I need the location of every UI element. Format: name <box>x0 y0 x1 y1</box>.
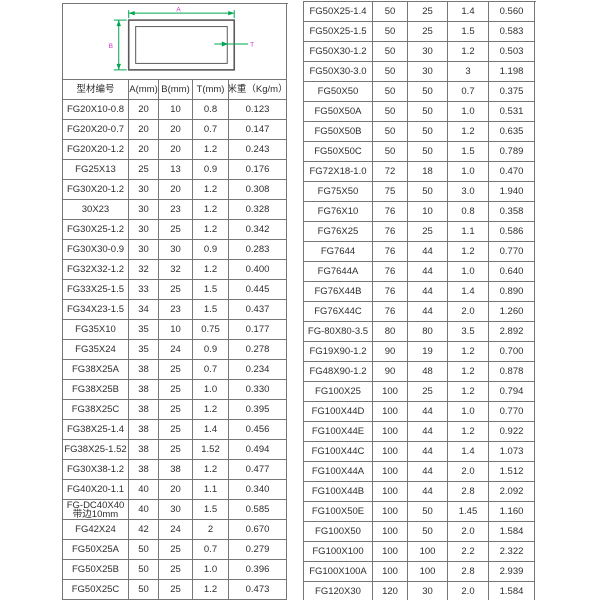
cell-t: 1.1 <box>448 222 489 242</box>
cell-weight: 0.395 <box>229 400 287 420</box>
cell-t: 3.5 <box>448 322 489 342</box>
cell-a: 25 <box>129 160 159 180</box>
table-row: FG38X25C38251.20.395 <box>63 400 288 420</box>
cell-weight: 0.330 <box>229 380 287 400</box>
cell-a: 40 <box>129 480 159 500</box>
cell-t: 1.52 <box>193 440 229 460</box>
cell-model: FG25X13 <box>63 160 129 180</box>
cell-a: 32 <box>129 260 159 280</box>
cell-t: 1.5 <box>193 300 229 320</box>
cell-b: 44 <box>408 422 448 442</box>
cell-weight: 0.878 <box>489 362 535 382</box>
cell-weight: 1.940 <box>489 182 535 202</box>
cell-model: FG-DC40X40 带边10mm <box>63 500 129 520</box>
cell-a: 50 <box>373 82 408 102</box>
cell-t: 0.75 <box>193 320 229 340</box>
table-row: FG100X44B100442.82.092 <box>304 482 536 502</box>
table-row: FG34X23-1.534231.50.437 <box>63 300 288 320</box>
cell-model: FG30X20-1.2 <box>63 180 129 200</box>
cell-b: 30 <box>408 62 448 82</box>
cell-t: 1.2 <box>448 242 489 262</box>
cell-model: FG20X20-1.2 <box>63 140 129 160</box>
cell-t: 2.8 <box>448 562 489 582</box>
dim-label-b: B <box>109 42 113 49</box>
cell-model: FG100X100A <box>304 562 373 582</box>
cell-a: 50 <box>373 142 408 162</box>
cell-a: 38 <box>129 420 159 440</box>
cell-weight: 0.635 <box>489 122 535 142</box>
cell-b: 25 <box>408 22 448 42</box>
cell-a: 38 <box>129 440 159 460</box>
tube-diagram-svg: A B T <box>63 4 286 80</box>
cell-a: 76 <box>373 202 408 222</box>
cell-t: 1.4 <box>448 2 489 22</box>
table-row: FG100X44E100441.20.922 <box>304 422 536 442</box>
cell-weight: 0.670 <box>229 520 287 540</box>
cell-a: 50 <box>373 122 408 142</box>
cell-b: 50 <box>408 182 448 202</box>
cell-b: 18 <box>408 162 448 182</box>
cell-a: 35 <box>129 320 159 340</box>
cell-b: 100 <box>408 542 448 562</box>
cell-b: 25 <box>408 222 448 242</box>
cell-a: 35 <box>129 340 159 360</box>
cell-t: 1.2 <box>448 422 489 442</box>
cell-weight: 1.073 <box>489 442 535 462</box>
cell-a: 38 <box>129 380 159 400</box>
cell-b: 100 <box>408 562 448 582</box>
cell-a: 100 <box>373 462 408 482</box>
cell-b: 44 <box>408 442 448 462</box>
cell-a: 20 <box>129 120 159 140</box>
cell-a: 30 <box>129 180 159 200</box>
cell-a: 40 <box>129 500 159 520</box>
cell-t: 0.9 <box>193 340 229 360</box>
cell-model: FG-80X80-3.5 <box>304 322 373 342</box>
cell-weight: 0.358 <box>489 202 535 222</box>
cell-t: 1.2 <box>193 220 229 240</box>
cell-model: FG76X44C <box>304 302 373 322</box>
cell-b: 30 <box>408 582 448 600</box>
cell-weight: 0.700 <box>489 342 535 362</box>
table-row: FG-DC40X40 带边10mm40301.50.585 <box>63 500 288 520</box>
cell-model: FG100X50E <box>304 502 373 522</box>
cell-weight: 2.322 <box>489 542 535 562</box>
cell-model: FG72X18-1.0 <box>304 162 373 182</box>
table-row: FG35X2435240.90.278 <box>63 340 288 360</box>
table-row: FG7644A76441.00.640 <box>304 262 536 282</box>
cell-t: 1.2 <box>193 260 229 280</box>
table-row: FG32X32-1.232321.20.400 <box>63 260 288 280</box>
cell-a: 100 <box>373 422 408 442</box>
cell-model: FG50X25-1.4 <box>304 2 373 22</box>
left-table-body: FG20X10-0.820100.80.123FG20X20-0.720200.… <box>63 100 288 600</box>
cell-a: 100 <box>373 522 408 542</box>
cell-model: FG100X44C <box>304 442 373 462</box>
cell-t: 0.8 <box>448 202 489 222</box>
cell-weight: 0.770 <box>489 402 535 422</box>
cell-b: 25 <box>159 560 193 580</box>
cell-weight: 0.340 <box>229 480 287 500</box>
cell-weight: 0.396 <box>229 560 287 580</box>
cell-b: 44 <box>408 282 448 302</box>
cell-t: 1.4 <box>448 442 489 462</box>
cell-t: 1.2 <box>193 580 229 600</box>
cell-model: FG76X10 <box>304 202 373 222</box>
dimension-a-lines <box>129 10 235 18</box>
cell-b: 32 <box>159 260 193 280</box>
cell-b: 50 <box>408 82 448 102</box>
cell-b: 23 <box>159 200 193 220</box>
cell-b: 30 <box>408 42 448 62</box>
cell-a: 76 <box>373 302 408 322</box>
table-row: FG100X1001001002.22.322 <box>304 542 536 562</box>
arrow-b-bottom <box>117 63 121 69</box>
cell-model: FG50X50C <box>304 142 373 162</box>
cell-model: FG50X25C <box>63 580 129 600</box>
cell-weight: 0.437 <box>229 300 287 320</box>
cell-a: 90 <box>373 362 408 382</box>
cell-model: FG7644A <box>304 262 373 282</box>
cell-b: 20 <box>159 180 193 200</box>
cell-a: 100 <box>373 382 408 402</box>
cell-b: 25 <box>159 540 193 560</box>
cell-a: 100 <box>373 562 408 582</box>
table-row: FG100X44A100442.01.512 <box>304 462 536 482</box>
cell-weight: 0.177 <box>229 320 287 340</box>
cell-a: 38 <box>129 360 159 380</box>
cell-model: FG100X100 <box>304 542 373 562</box>
dim-label-a: A <box>176 6 181 13</box>
cell-t: 3 <box>448 62 489 82</box>
table-row: FG50X50A50501.00.531 <box>304 102 536 122</box>
cell-b: 25 <box>159 380 193 400</box>
table-row: FG50X50B50501.20.635 <box>304 122 536 142</box>
cell-b: 25 <box>408 2 448 22</box>
table-row: FG50X25-1.550251.50.583 <box>304 22 536 42</box>
table-row: FG50X25C50251.20.473 <box>63 580 288 600</box>
cell-a: 76 <box>373 242 408 262</box>
cell-weight: 0.477 <box>229 460 287 480</box>
cell-weight: 1.584 <box>489 522 535 542</box>
cell-b: 10 <box>159 320 193 340</box>
table-row: FG76X44C76442.01.260 <box>304 302 536 322</box>
cell-model: 30X23 <box>63 200 129 220</box>
cell-t: 0.7 <box>193 540 229 560</box>
cell-a: 76 <box>373 262 408 282</box>
cell-b: 38 <box>159 460 193 480</box>
cell-t: 0.7 <box>448 82 489 102</box>
cell-model: FG35X10 <box>63 320 129 340</box>
table-row: FG72X18-1.072181.00.470 <box>304 162 536 182</box>
cell-t: 2.0 <box>448 582 489 600</box>
cell-a: 50 <box>373 22 408 42</box>
header-weight: 米重（Kg/m） <box>229 80 287 100</box>
cell-a: 50 <box>129 580 159 600</box>
cell-model: FG35X24 <box>63 340 129 360</box>
table-row: FG764476441.20.770 <box>304 242 536 262</box>
cell-model: FG50X50A <box>304 102 373 122</box>
left-spec-table: A B T 型材编号A(mm)B(mm)T(mm)米重（Kg/m） FG20X1… <box>62 3 288 600</box>
cell-model: FG34X23-1.5 <box>63 300 129 320</box>
cell-weight: 0.342 <box>229 220 287 240</box>
cell-t: 1.0 <box>193 560 229 580</box>
cell-weight: 0.176 <box>229 160 287 180</box>
cell-weight: 0.531 <box>489 102 535 122</box>
cell-b: 20 <box>159 480 193 500</box>
cell-model: FG100X44E <box>304 422 373 442</box>
cell-model: FG50X25-1.5 <box>304 22 373 42</box>
cell-t: 3.0 <box>448 182 489 202</box>
cell-t: 1.0 <box>448 162 489 182</box>
cell-model: FG32X32-1.2 <box>63 260 129 280</box>
cell-weight: 0.890 <box>489 282 535 302</box>
cell-weight: 0.123 <box>229 100 287 120</box>
cell-a: 50 <box>373 2 408 22</box>
cell-t: 1.0 <box>448 102 489 122</box>
cell-weight: 0.770 <box>489 242 535 262</box>
table-row: FG20X20-0.720200.70.147 <box>63 120 288 140</box>
cell-model: FG100X44A <box>304 462 373 482</box>
cell-t: 1.2 <box>448 382 489 402</box>
cell-weight: 0.234 <box>229 360 287 380</box>
cell-weight: 0.503 <box>489 42 535 62</box>
table-row: FG100X44C100441.41.073 <box>304 442 536 462</box>
cell-model: FG48X90-1.2 <box>304 362 373 382</box>
table-row: FG30X25-1.230251.20.342 <box>63 220 288 240</box>
cell-a: 72 <box>373 162 408 182</box>
cell-a: 30 <box>129 220 159 240</box>
cell-b: 19 <box>408 342 448 362</box>
cell-b: 80 <box>408 322 448 342</box>
cell-b: 50 <box>408 142 448 162</box>
cell-model: FG40X20-1.1 <box>63 480 129 500</box>
cell-a: 38 <box>129 400 159 420</box>
cell-a: 30 <box>129 200 159 220</box>
cell-a: 50 <box>129 540 159 560</box>
cell-b: 50 <box>408 502 448 522</box>
cell-b: 44 <box>408 462 448 482</box>
cell-b: 50 <box>408 522 448 542</box>
table-row: FG50X50C50501.50.789 <box>304 142 536 162</box>
cell-t: 1.2 <box>448 122 489 142</box>
cell-b: 30 <box>159 240 193 260</box>
cell-weight: 0.560 <box>489 2 535 22</box>
cell-model: FG100X25 <box>304 382 373 402</box>
cell-model: FG38X25A <box>63 360 129 380</box>
cell-model: FG50X50B <box>304 122 373 142</box>
cell-model: FG30X25-1.2 <box>63 220 129 240</box>
header-a-mm: A(mm) <box>129 80 159 100</box>
table-row: FG100X50100502.01.584 <box>304 522 536 542</box>
cell-weight: 0.789 <box>489 142 535 162</box>
cell-a: 20 <box>129 100 159 120</box>
header-t-mm: T(mm) <box>193 80 229 100</box>
cell-a: 76 <box>373 222 408 242</box>
cell-model: FG100X44D <box>304 402 373 422</box>
cell-weight: 2.892 <box>489 322 535 342</box>
dim-label-t: T <box>250 41 254 48</box>
cell-model: FG38X25C <box>63 400 129 420</box>
cell-t: 0.9 <box>193 240 229 260</box>
table-row: FG50X25B50251.00.396 <box>63 560 288 580</box>
table-row: FG20X20-1.220201.20.243 <box>63 140 288 160</box>
cell-a: 100 <box>373 442 408 462</box>
cell-a: 120 <box>373 582 408 600</box>
table-row: FG50X30-3.0503031.198 <box>304 62 536 82</box>
cell-weight: 0.400 <box>229 260 287 280</box>
cell-b: 24 <box>159 340 193 360</box>
cell-weight: 2.939 <box>489 562 535 582</box>
cell-t: 2.2 <box>448 542 489 562</box>
cell-t: 1.2 <box>193 200 229 220</box>
right-table-body: FG50X25-1.450251.40.560FG50X25-1.550251.… <box>304 2 536 600</box>
cell-model: FG30X30-0.9 <box>63 240 129 260</box>
cell-t: 1.0 <box>448 262 489 282</box>
cell-t: 2.8 <box>448 482 489 502</box>
cell-a: 100 <box>373 502 408 522</box>
cell-t: 0.8 <box>193 100 229 120</box>
cell-b: 44 <box>408 302 448 322</box>
cell-weight: 0.470 <box>489 162 535 182</box>
cell-model: FG19X90-1.2 <box>304 342 373 362</box>
arrow-b-top <box>117 20 121 26</box>
cell-model: FG50X30-3.0 <box>304 62 373 82</box>
cell-t: 1.5 <box>448 22 489 42</box>
cell-b: 24 <box>159 520 193 540</box>
cell-t: 1.4 <box>193 420 229 440</box>
cell-weight: 0.585 <box>229 500 287 520</box>
arrow-a-right <box>228 10 234 14</box>
cell-weight: 0.147 <box>229 120 287 140</box>
cell-weight: 1.584 <box>489 582 535 600</box>
cell-a: 50 <box>373 102 408 122</box>
cell-weight: 1.198 <box>489 62 535 82</box>
dimension-b-lines <box>114 20 127 70</box>
table-row: FG38X25A38250.70.234 <box>63 360 288 380</box>
header-b-mm: B(mm) <box>159 80 193 100</box>
table-row: FG75X5075503.01.940 <box>304 182 536 202</box>
cell-a: 30 <box>129 240 159 260</box>
table-row: FG50X25-1.450251.40.560 <box>304 2 536 22</box>
cell-model: FG20X10-0.8 <box>63 100 129 120</box>
cell-weight: 1.512 <box>489 462 535 482</box>
cell-a: 50 <box>373 62 408 82</box>
table-row: FG38X25-1.5238251.520.494 <box>63 440 288 460</box>
cell-model: FG33X25-1.5 <box>63 280 129 300</box>
cell-weight: 0.494 <box>229 440 287 460</box>
cell-b: 44 <box>408 262 448 282</box>
cell-weight: 0.375 <box>489 82 535 102</box>
cell-t: 1.45 <box>448 502 489 522</box>
table-row: FG19X90-1.290191.20.700 <box>304 342 536 362</box>
cell-b: 25 <box>159 280 193 300</box>
table-row: FG76X1076100.80.358 <box>304 202 536 222</box>
cell-a: 33 <box>129 280 159 300</box>
tube-inner-wall <box>136 26 228 63</box>
cell-b: 48 <box>408 362 448 382</box>
tube-outer-wall <box>129 20 235 70</box>
cell-t: 1.2 <box>193 140 229 160</box>
cell-t: 1.0 <box>448 402 489 422</box>
cell-model: FG30X38-1.2 <box>63 460 129 480</box>
cell-a: 50 <box>129 560 159 580</box>
cell-t: 1.0 <box>193 380 229 400</box>
table-row: FG42X24422420.670 <box>63 520 288 540</box>
header-model: 型材编号 <box>63 80 129 100</box>
cell-weight: 2.092 <box>489 482 535 502</box>
table-row: FG30X20-1.230201.20.308 <box>63 180 288 200</box>
cell-a: 100 <box>373 402 408 422</box>
cell-model: FG76X25 <box>304 222 373 242</box>
table-row: 30X2330231.20.328 <box>63 200 288 220</box>
cell-model: FG50X50 <box>304 82 373 102</box>
cell-t: 2.0 <box>448 302 489 322</box>
cell-weight: 0.243 <box>229 140 287 160</box>
table-row: FG40X20-1.140201.10.340 <box>63 480 288 500</box>
cell-weight: 0.445 <box>229 280 287 300</box>
table-row: FG76X2576251.10.586 <box>304 222 536 242</box>
cell-a: 100 <box>373 542 408 562</box>
cell-b: 25 <box>159 360 193 380</box>
cell-b: 44 <box>408 242 448 262</box>
cell-t: 1.2 <box>448 362 489 382</box>
cell-a: 20 <box>129 140 159 160</box>
cell-weight: 0.794 <box>489 382 535 402</box>
table-row: FG100X25100251.20.794 <box>304 382 536 402</box>
cell-b: 20 <box>159 120 193 140</box>
cell-b: 50 <box>408 122 448 142</box>
cell-model: FG76X44B <box>304 282 373 302</box>
cell-model: FG50X25B <box>63 560 129 580</box>
cell-model: FG38X25B <box>63 380 129 400</box>
cell-weight: 0.473 <box>229 580 287 600</box>
table-row: FG50X5050500.70.375 <box>304 82 536 102</box>
table-row: FG-80X80-3.580803.52.892 <box>304 322 536 342</box>
arrow-a-left <box>129 10 135 14</box>
cell-t: 0.7 <box>193 360 229 380</box>
cell-weight: 0.278 <box>229 340 287 360</box>
cell-a: 42 <box>129 520 159 540</box>
cell-t: 2.0 <box>448 522 489 542</box>
table-row: FG50X30-1.250301.20.503 <box>304 42 536 62</box>
cell-a: 100 <box>373 482 408 502</box>
cell-model: FG7644 <box>304 242 373 262</box>
table-row: FG100X100A1001002.82.939 <box>304 562 536 582</box>
table-row: FG38X25-1.438251.40.456 <box>63 420 288 440</box>
cell-weight: 0.328 <box>229 200 287 220</box>
cell-b: 25 <box>159 220 193 240</box>
tube-cross-section-diagram: A B T <box>63 4 287 80</box>
table-row: FG50X25A50250.70.279 <box>63 540 288 560</box>
cell-b: 25 <box>408 382 448 402</box>
cell-b: 23 <box>159 300 193 320</box>
table-row: FG30X30-0.930300.90.283 <box>63 240 288 260</box>
table-row: FG20X10-0.820100.80.123 <box>63 100 288 120</box>
cell-a: 50 <box>373 42 408 62</box>
cell-b: 25 <box>159 440 193 460</box>
table-row: FG100X44D100441.00.770 <box>304 402 536 422</box>
cell-weight: 0.279 <box>229 540 287 560</box>
cell-t: 1.4 <box>448 282 489 302</box>
cell-model: FG38X25-1.52 <box>63 440 129 460</box>
cell-weight: 0.456 <box>229 420 287 440</box>
profile-spec-sheet: A B T 型材编号A(mm)B(mm)T(mm)米重（Kg/m） FG20X1… <box>0 0 600 600</box>
table-row: FG38X25B38251.00.330 <box>63 380 288 400</box>
cell-t: 1.5 <box>448 142 489 162</box>
right-spec-table: FG50X25-1.450251.40.560FG50X25-1.550251.… <box>303 1 536 600</box>
cell-t: 2 <box>193 520 229 540</box>
